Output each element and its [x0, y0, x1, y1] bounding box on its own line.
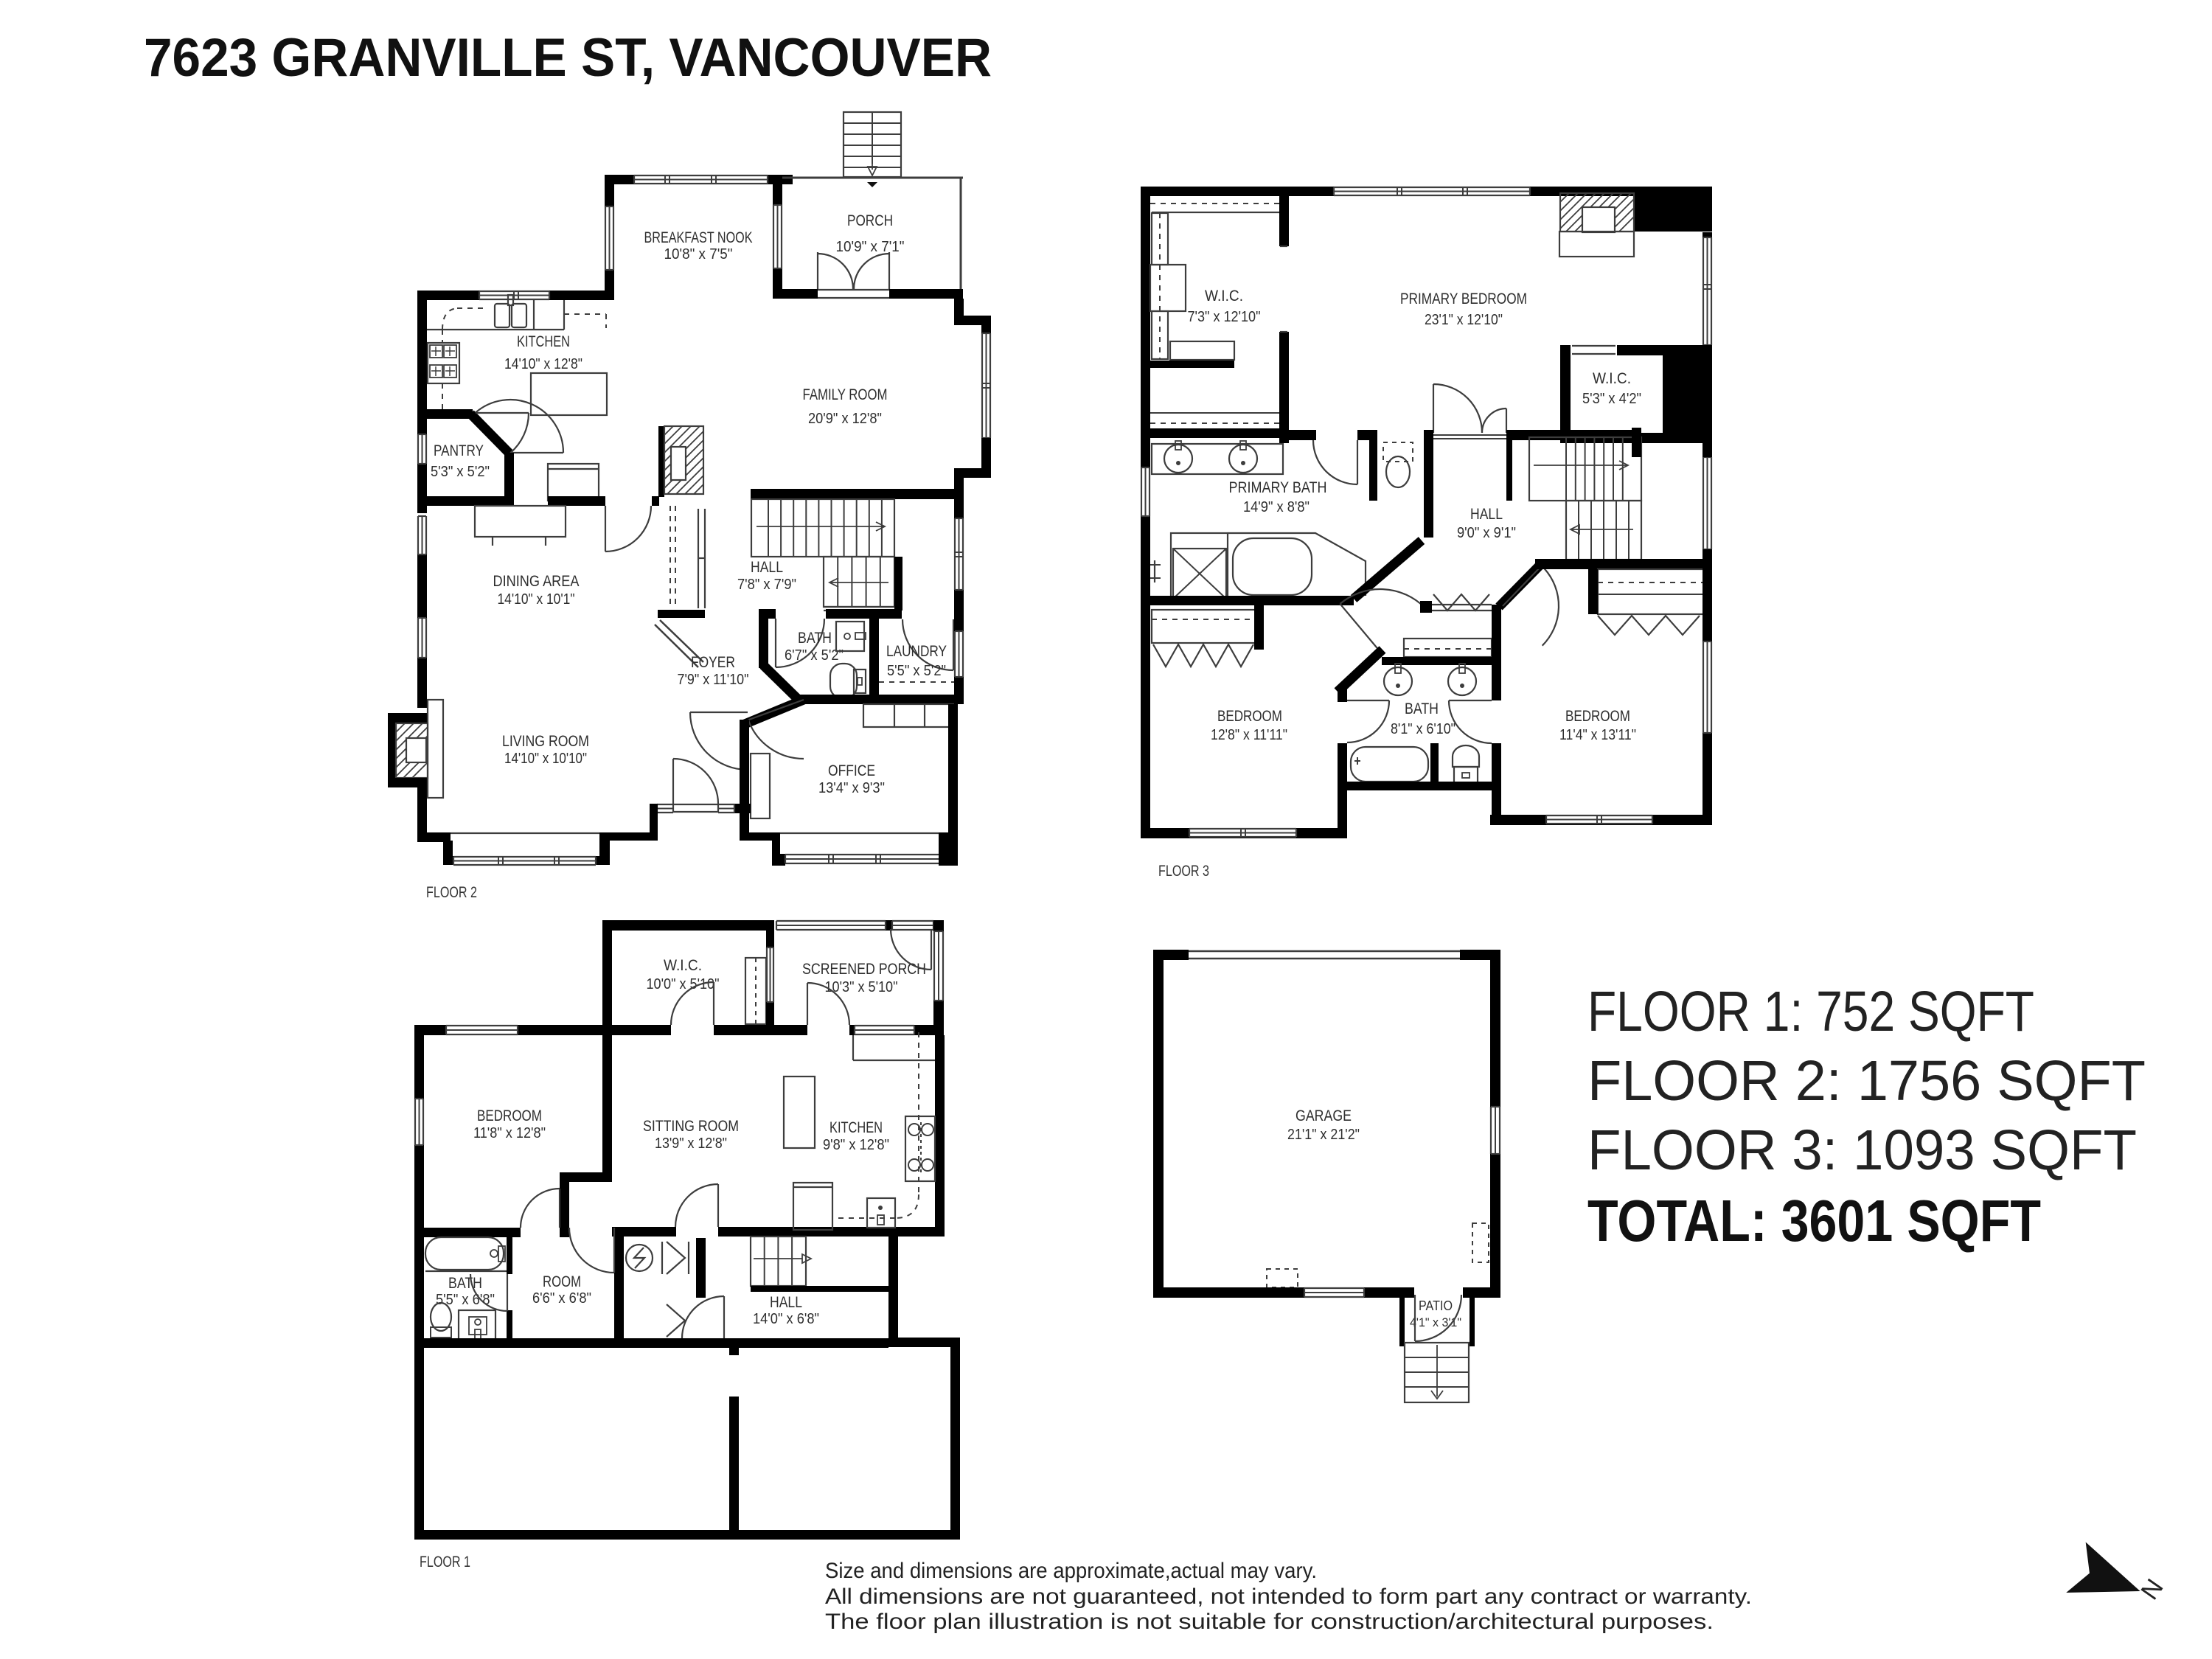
svg-text:14'9" x 8'8": 14'9" x 8'8" [1243, 499, 1310, 515]
svg-text:LIVING ROOM: LIVING ROOM [502, 733, 589, 750]
svg-text:The floor plan illustration is: The floor plan illustration is not suita… [825, 1610, 1714, 1634]
svg-text:FLOOR 2: 1756 SQFT: FLOOR 2: 1756 SQFT [1587, 1049, 2146, 1113]
svg-text:FLOOR 1: 752 SQFT: FLOOR 1: 752 SQFT [1587, 980, 2034, 1043]
svg-text:23'1" x 12'10": 23'1" x 12'10" [1425, 312, 1503, 328]
svg-text:5'3" x 5'2": 5'3" x 5'2" [431, 464, 490, 480]
svg-text:HALL: HALL [751, 559, 783, 576]
svg-text:7623 GRANVILLE ST, VANCOUVER: 7623 GRANVILLE ST, VANCOUVER [144, 28, 992, 88]
svg-text:BATH: BATH [448, 1275, 482, 1292]
svg-text:9'0" x 9'1": 9'0" x 9'1" [1457, 525, 1516, 541]
svg-text:PANTRY: PANTRY [434, 442, 484, 459]
svg-text:12'8" x 11'11": 12'8" x 11'11" [1211, 727, 1287, 743]
svg-text:6'7" x 5'2": 6'7" x 5'2" [785, 647, 844, 664]
svg-text:KITCHEN: KITCHEN [517, 333, 570, 350]
svg-text:BEDROOM: BEDROOM [1217, 708, 1282, 725]
svg-text:9'8" x 12'8": 9'8" x 12'8" [823, 1137, 889, 1153]
svg-text:BEDROOM: BEDROOM [477, 1107, 542, 1124]
svg-text:6'6" x 6'8": 6'6" x 6'8" [532, 1290, 591, 1307]
svg-text:11'4" x 13'11": 11'4" x 13'11" [1559, 727, 1636, 743]
svg-text:OFFICE: OFFICE [828, 762, 875, 779]
svg-text:14'0" x 6'8": 14'0" x 6'8" [753, 1311, 819, 1327]
svg-text:7'9" x 11'10": 7'9" x 11'10" [678, 672, 749, 688]
svg-text:FLOOR 1: FLOOR 1 [420, 1554, 470, 1571]
svg-text:7'3" x 12'10": 7'3" x 12'10" [1188, 309, 1261, 325]
svg-text:4'1" x 3'1": 4'1" x 3'1" [1410, 1315, 1461, 1329]
svg-text:21'1" x 21'2": 21'1" x 21'2" [1287, 1127, 1360, 1143]
svg-text:10'8" x 7'5": 10'8" x 7'5" [664, 246, 733, 262]
svg-text:PRIMARY BATH: PRIMARY BATH [1229, 479, 1327, 496]
svg-text:14'10" x 10'10": 14'10" x 10'10" [504, 751, 587, 767]
svg-text:5'3" x 4'2": 5'3" x 4'2" [1582, 391, 1641, 407]
svg-text:GARAGE: GARAGE [1295, 1107, 1352, 1124]
svg-text:PRIMARY BEDROOM: PRIMARY BEDROOM [1400, 291, 1527, 307]
svg-text:8'1" x 6'10": 8'1" x 6'10" [1391, 721, 1455, 737]
svg-text:BATH: BATH [798, 630, 832, 647]
svg-text:FAMILY ROOM: FAMILY ROOM [803, 386, 888, 403]
svg-text:KITCHEN: KITCHEN [829, 1119, 883, 1136]
svg-text:10'0" x 5'10": 10'0" x 5'10" [647, 976, 720, 992]
svg-text:5'5" x 5'2": 5'5" x 5'2" [887, 663, 946, 679]
svg-text:13'9" x 12'8": 13'9" x 12'8" [655, 1135, 727, 1152]
svg-text:W.I.C.: W.I.C. [664, 957, 702, 974]
svg-text:HALL: HALL [770, 1294, 802, 1311]
svg-text:BEDROOM: BEDROOM [1565, 708, 1630, 725]
svg-text:Size and dimensions are approx: Size and dimensions are approximate,actu… [825, 1559, 1317, 1583]
svg-text:14'10" x 10'1": 14'10" x 10'1" [498, 591, 575, 608]
svg-text:W.I.C.: W.I.C. [1205, 288, 1243, 305]
svg-text:W.I.C.: W.I.C. [1593, 370, 1631, 387]
svg-text:TOTAL: 3601 SQFT: TOTAL: 3601 SQFT [1587, 1188, 2041, 1253]
svg-text:5'5" x 6'8": 5'5" x 6'8" [436, 1292, 495, 1308]
svg-text:BREAKFAST NOOK: BREAKFAST NOOK [644, 229, 753, 246]
svg-text:13'4" x 9'3": 13'4" x 9'3" [818, 780, 885, 796]
svg-text:14'10" x 12'8": 14'10" x 12'8" [504, 356, 582, 372]
svg-text:HALL: HALL [1470, 506, 1503, 523]
svg-text:20'9" x 12'8": 20'9" x 12'8" [808, 411, 882, 427]
svg-text:10'9" x 7'1": 10'9" x 7'1" [836, 239, 905, 255]
svg-text:LAUNDRY: LAUNDRY [886, 643, 947, 660]
svg-text:11'8" x 12'8": 11'8" x 12'8" [473, 1125, 546, 1141]
svg-text:7'8" x 7'9": 7'8" x 7'9" [737, 577, 796, 593]
svg-text:SITTING ROOM: SITTING ROOM [643, 1118, 739, 1135]
svg-text:PORCH: PORCH [847, 212, 893, 229]
svg-text:FLOOR 3: 1093 SQFT: FLOOR 3: 1093 SQFT [1587, 1119, 2137, 1182]
svg-text:SCREENED PORCH: SCREENED PORCH [802, 961, 926, 978]
svg-text:FLOOR 3: FLOOR 3 [1158, 863, 1209, 880]
svg-text:BATH: BATH [1405, 700, 1439, 717]
svg-text:PATIO: PATIO [1419, 1298, 1453, 1313]
svg-text:FOYER: FOYER [691, 654, 735, 671]
svg-text:All dimensions are not guarant: All dimensions are not guaranteed, not i… [825, 1585, 1752, 1609]
svg-text:DINING AREA: DINING AREA [493, 573, 580, 590]
svg-text:ROOM: ROOM [543, 1273, 581, 1290]
svg-text:FLOOR 2: FLOOR 2 [426, 884, 477, 901]
